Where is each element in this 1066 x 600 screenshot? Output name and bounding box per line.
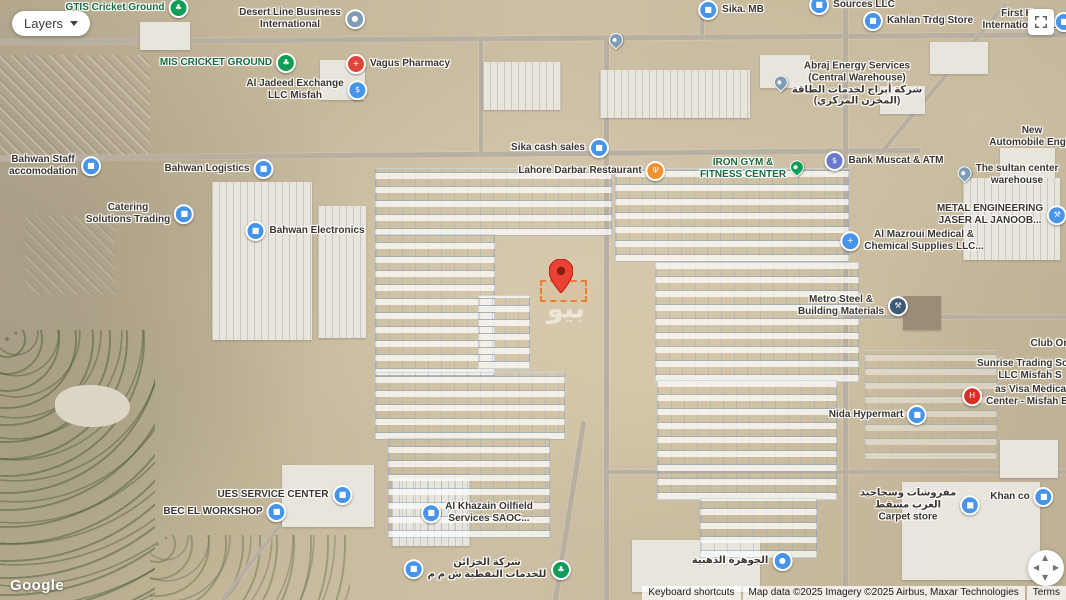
hardware-icon: ⚒ <box>888 296 908 316</box>
medical-supplies-icon: + <box>840 231 860 251</box>
tree-icon-glyph: ♣ <box>283 59 290 67</box>
map-data-credit: Map data ©2025 Imagery ©2025 Airbus, Max… <box>743 586 1025 600</box>
place-text: Lahore Darbar Restaurant <box>518 165 641 177</box>
place-al-mazroui-medical[interactable]: +Al Mazroui Medical &Chemical Supplies L… <box>840 229 983 253</box>
place-text: Kahlan Trdg Store <box>887 15 973 27</box>
cabin-grid-area <box>615 168 849 262</box>
pan-control[interactable]: ▲ ▼ ◀ ▶ <box>1028 550 1064 586</box>
selected-location-marker[interactable] <box>549 259 573 298</box>
place-al-jawhara[interactable]: الجوهرة الذهبية● <box>692 551 793 571</box>
place-bahwan-staff[interactable]: Bahwan Staffaccomodation■ <box>9 154 101 178</box>
place-text: IRON GYM &FITNESS CENTER <box>700 157 786 181</box>
currency-exchange-icon-glyph: $ <box>355 86 360 94</box>
business-icon: ■ <box>332 485 352 505</box>
business-icon: ■ <box>404 559 424 579</box>
place-text: Sika. MB <box>722 4 764 16</box>
cabin-grid-area <box>478 295 530 369</box>
shopping-bag-icon-glyph: ■ <box>595 144 603 152</box>
shopping-bag-icon: ■ <box>907 405 927 425</box>
layers-button-label: Layers <box>24 16 63 31</box>
pan-up-icon: ▲ <box>1042 554 1048 562</box>
hardware-icon-glyph: ⚒ <box>894 302 901 310</box>
place-lahore-darbar[interactable]: Lahore Darbar RestaurantΨ <box>518 161 665 181</box>
medical-supplies-icon-glyph: + <box>847 237 854 245</box>
restaurant-icon-glyph: Ψ <box>653 167 659 175</box>
cabin-grid-area <box>375 372 565 440</box>
place-text: METAL ENGINEERINGJASER AL JANOOB... <box>937 203 1043 227</box>
cabin-grid-area <box>655 262 859 382</box>
cabin-grid-area <box>657 380 837 500</box>
place-pin-icon <box>955 163 975 183</box>
place-text: مفروشات وسجاجيدالعرب مسقطCarpet store <box>860 487 956 522</box>
business-icon-glyph: ■ <box>427 509 435 517</box>
business-icon-glyph: ■ <box>87 162 95 170</box>
generic-place-icon: ● <box>345 9 365 29</box>
place-bec-el-workshop[interactable]: BEC EL WORKSHOP■ <box>163 502 286 522</box>
pan-left-icon: ◀ <box>1033 564 1039 572</box>
tree-icon: ♣ <box>168 0 188 18</box>
shopping-bag-icon: ■ <box>960 495 980 515</box>
place-pin-icon <box>771 72 791 92</box>
business-icon-glyph: ■ <box>1040 493 1048 501</box>
cabin-grid-area <box>375 234 495 376</box>
place-standalone-tree[interactable]: ♣ <box>551 560 571 580</box>
business-icon-glyph: ■ <box>339 491 347 499</box>
business-icon-glyph: ■ <box>410 565 418 573</box>
place-text: Al Jadeed ExchangeLLC Misfah <box>246 78 343 102</box>
place-khan-co[interactable]: Khan co■ <box>990 487 1053 507</box>
place-text: شركة الخزائنللخدمات النفطية ش م م <box>428 557 547 581</box>
place-text: Al Khazain OilfieldServices SAOC... <box>445 501 533 525</box>
layers-button[interactable]: Layers <box>12 11 90 36</box>
place-text: Al Mazroui Medical &Chemical Supplies LL… <box>864 229 983 253</box>
place-mis-cricket-ground[interactable]: MIS CRICKET GROUND♣ <box>160 53 296 73</box>
terms-link[interactable]: Terms <box>1027 586 1066 600</box>
currency-exchange-icon: $ <box>348 80 368 100</box>
place-school-poi[interactable]: ■ <box>1054 12 1066 32</box>
place-kahlan-trdg-store[interactable]: ■Kahlan Trdg Store <box>863 11 973 31</box>
building <box>483 62 561 110</box>
place-sultan-center[interactable]: The sultan centerwarehouse <box>958 163 1059 187</box>
place-unnamed-pin[interactable] <box>609 37 623 47</box>
school-icon: ■ <box>1054 12 1066 32</box>
generic-place-icon-glyph: ● <box>351 15 358 23</box>
place-text: Nida Hypermart <box>829 409 903 421</box>
business-icon: ■ <box>81 156 101 176</box>
place-bahwan-electronics[interactable]: ■Bahwan Electronics <box>245 221 364 241</box>
keyboard-shortcuts-link[interactable]: Keyboard shortcuts <box>642 586 740 600</box>
terrain-village-texture <box>0 55 150 160</box>
business-icon-glyph: ■ <box>260 165 268 173</box>
pharmacy-icon-glyph: + <box>353 60 360 68</box>
place-visa-medical[interactable]: Has Visa MedicalCenter - Misfah Bra <box>962 384 1066 408</box>
store-icon: ■ <box>698 0 718 20</box>
shopping-bag-icon: ■ <box>589 138 609 158</box>
place-sunrise-trading[interactable]: Sunrise Trading SolutiLLC Misfah S <box>977 358 1066 382</box>
place-iron-gym[interactable]: IRON GYM &FITNESS CENTER <box>700 157 804 181</box>
place-text: Khan co <box>990 491 1029 503</box>
pan-right-icon: ▶ <box>1053 564 1059 572</box>
tree-icon: ♣ <box>276 53 296 73</box>
business-icon: ■ <box>174 204 194 224</box>
place-text: الجوهرة الذهبية <box>692 555 769 567</box>
pharmacy-icon: + <box>346 54 366 74</box>
terrain-vegetation <box>150 535 350 600</box>
place-desert-line-business[interactable]: Desert Line BusinessInternational● <box>239 7 365 31</box>
business-icon-glyph: ■ <box>180 210 188 218</box>
place-text: Bahwan Electronics <box>269 225 364 237</box>
place-al-khazain-oilfield[interactable]: ■Al Khazain OilfieldServices SAOC... <box>421 501 533 525</box>
place-carpet-store[interactable]: مفروشات وسجاجيدالعرب مسقطCarpet store■ <box>860 487 980 522</box>
place-club-on[interactable]: Club On <box>1031 338 1066 350</box>
place-bahwan-logistics[interactable]: Bahwan Logistics■ <box>164 159 273 179</box>
place-text: The sultan centerwarehouse <box>976 163 1059 187</box>
factory-icon-glyph: ⚒ <box>1054 211 1061 219</box>
business-icon: ■ <box>1034 487 1054 507</box>
business-icon: ■ <box>267 502 287 522</box>
shopping-bag-icon-glyph: ■ <box>966 501 974 509</box>
terrain-outcrop <box>55 385 130 427</box>
google-logo: Google <box>10 577 64 594</box>
school-icon-glyph: ■ <box>1060 18 1066 26</box>
bank-icon-glyph: $ <box>832 157 837 165</box>
place-text: CateringSolutions Trading <box>86 202 170 226</box>
business-icon-glyph: ■ <box>252 227 260 235</box>
place-text: MIS CRICKET GROUND <box>160 57 272 69</box>
tree-icon-glyph: ♣ <box>175 4 182 12</box>
place-text: as Visa MedicalCenter - Misfah Bra <box>986 384 1066 408</box>
place-text: Vagus Pharmacy <box>370 58 450 70</box>
building <box>1000 440 1058 478</box>
place-al-khazain-arabic[interactable]: ■شركة الخزائنللخدمات النفطية ش م م <box>404 557 547 581</box>
gym-pin-icon <box>787 157 807 177</box>
building <box>140 22 190 50</box>
place-al-jadeed-exchange[interactable]: Al Jadeed ExchangeLLC Misfah$ <box>246 78 367 102</box>
attribution-bar: Keyboard shortcuts Map data ©2025 Imager… <box>642 586 1066 600</box>
factory-icon: ⚒ <box>1047 205 1066 225</box>
listing-watermark: بيو <box>547 294 585 325</box>
building <box>600 70 750 118</box>
place-text: Club On <box>1031 338 1066 350</box>
place-text: Abraj Energy Services(Central Warehouse)… <box>792 60 922 107</box>
business-icon: ■ <box>421 503 441 523</box>
place-nida-hypermart[interactable]: Nida Hypermart■ <box>829 405 927 425</box>
place-text: Metro Steel &Building Materials <box>798 294 884 318</box>
place-text: Sika cash sales <box>511 142 585 154</box>
place-sika-mb[interactable]: ■Sika. MB <box>698 0 764 20</box>
place-text: Bank Muscat & ATM <box>848 155 943 167</box>
hospital-icon-glyph: H <box>969 392 975 400</box>
business-icon-glyph: ● <box>779 557 786 565</box>
place-text: Sources LLC <box>833 0 895 11</box>
business-icon: ● <box>772 551 792 571</box>
place-text: Sunrise Trading SolutiLLC Misfah S <box>977 358 1066 382</box>
place-text: NewAutomobile Engin <box>989 125 1066 149</box>
place-text: BEC EL WORKSHOP <box>163 506 262 518</box>
terrain-vegetation <box>0 330 155 600</box>
building <box>212 182 312 340</box>
terrain-village-texture <box>25 215 115 295</box>
shopping-bag-icon: ■ <box>863 11 883 31</box>
store-icon-glyph: ■ <box>704 6 712 14</box>
business-icon-glyph: ■ <box>273 508 281 516</box>
building <box>930 42 988 74</box>
place-new-automobile[interactable]: NewAutomobile Engin <box>989 125 1066 149</box>
shopping-bag-icon-glyph: ■ <box>913 411 921 419</box>
map-canvas[interactable]: بيو GTIS Cricket Ground♣Desert Line Busi… <box>0 0 1066 600</box>
tree-icon: ♣ <box>551 560 571 580</box>
business-icon-glyph: ■ <box>815 1 823 9</box>
place-metro-steel[interactable]: Metro Steel &Building Materials⚒ <box>798 294 908 318</box>
business-icon: ■ <box>245 221 265 241</box>
place-text: UES SERVICE CENTER <box>218 489 329 501</box>
place-abraj-energy[interactable]: Abraj Energy Services(Central Warehouse)… <box>774 60 922 107</box>
fullscreen-button[interactable] <box>1028 9 1054 35</box>
map-pin-icon <box>549 259 573 293</box>
tree-icon-glyph: ♣ <box>557 566 564 574</box>
chevron-down-icon <box>70 21 78 26</box>
hospital-icon: H <box>962 386 982 406</box>
place-vagus-pharmacy[interactable]: +Vagus Pharmacy <box>346 54 450 74</box>
bank-icon: $ <box>824 151 844 171</box>
place-catering-solutions[interactable]: CateringSolutions Trading■ <box>86 202 194 226</box>
restaurant-icon: Ψ <box>646 161 666 181</box>
road <box>604 38 609 600</box>
building <box>903 296 941 330</box>
place-bank-muscat[interactable]: $Bank Muscat & ATM <box>824 151 943 171</box>
place-text: Bahwan Logistics <box>164 163 249 175</box>
shopping-bag-icon-glyph: ■ <box>869 17 877 25</box>
business-icon: ■ <box>809 0 829 15</box>
fullscreen-icon <box>1034 15 1048 29</box>
place-metal-engineering[interactable]: METAL ENGINEERINGJASER AL JANOOB...⚒ <box>937 203 1066 227</box>
place-text: Desert Line BusinessInternational <box>239 7 341 31</box>
cabin-grid-area <box>700 498 817 558</box>
business-icon: ■ <box>254 159 274 179</box>
place-pin-icon <box>606 30 626 50</box>
place-text: Bahwan Staffaccomodation <box>9 154 77 178</box>
place-sika-cash-sales[interactable]: Sika cash sales■ <box>511 138 609 158</box>
pan-down-icon: ▼ <box>1042 574 1048 582</box>
